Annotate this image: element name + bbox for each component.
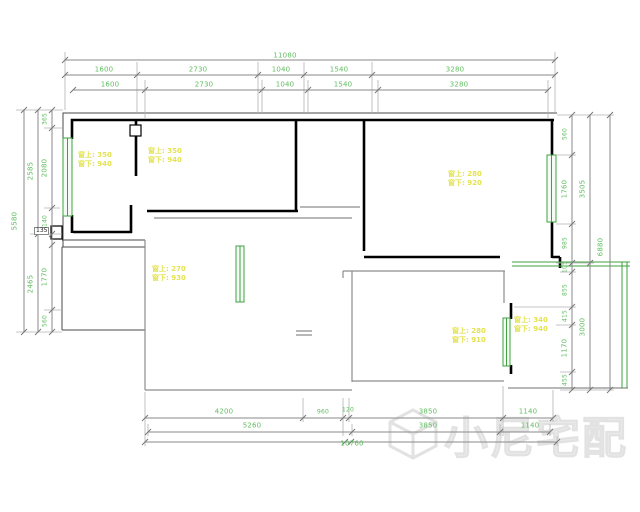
dimension-label: 5580 [12,212,19,231]
window-height-note: 窗上: 280窗下: 920 [448,170,482,188]
window-height-note: 窗上: 340窗下: 940 [514,316,548,334]
dimension-label: 105 [562,261,569,273]
flue-box [130,125,141,136]
window-height-note: 窗上: 350窗下: 940 [78,151,112,169]
dimension-label: 1760 [562,180,569,199]
dimension-ticks [21,57,613,445]
dimension-label: 415 [562,310,569,322]
windows [63,138,630,388]
dimension-label: 365 [42,113,49,125]
dimension-label: 960 [317,409,329,416]
dimension-label: 1600 [101,82,120,89]
dimension-label: 1540 [334,82,353,89]
entry-door-symbol [51,226,62,239]
dimension-label: 2465 [28,275,35,294]
dimension-label: 2730 [189,67,208,74]
dimension-label: 2585 [28,162,35,181]
dimension-label: 3850 [419,423,438,430]
dimension-label: 1770 [42,268,49,287]
dimension-label: 3850 [419,409,438,416]
dimension-label: 1040 [272,67,291,74]
dimension-label: 3280 [446,67,465,74]
floor-plan [0,0,640,512]
dimension-label: 560 [42,315,49,327]
extension-lines [16,52,614,446]
window-height-note: 窗上: 280窗下: 910 [452,327,486,345]
dimension-label: 5260 [243,423,262,430]
dimension-label: 1140 [521,423,540,430]
dimension-label: 1140 [519,409,538,416]
dimension-lines [24,60,610,442]
dimension-label: 1600 [95,67,114,74]
secondary-walls [145,207,628,390]
dimension-label: 3280 [450,82,469,89]
dimension-label: 120 [342,407,354,414]
dimension-label: 2080 [42,159,49,178]
wall-dimension-box: 135 [34,227,49,235]
dimension-label: 1540 [330,67,349,74]
dimension-label: 985 [562,237,569,249]
dimension-label: 6880 [598,238,605,257]
dimension-label: 560 [562,128,569,140]
dimension-label: 4200 [215,409,234,416]
dimension-label: 1170 [562,339,569,358]
dimension-label: 140 [42,215,49,227]
dimension-label: 2730 [195,82,214,89]
floor-plan-canvas: 小尼宅配 [0,0,640,512]
window-height-note: 窗上: 350窗下: 940 [148,147,182,165]
dimension-label: 10760 [340,441,363,448]
dimension-label: 855 [562,284,569,296]
dimension-label: 11080 [273,53,296,60]
dimension-label: 3505 [580,180,587,199]
dimension-label: 3000 [580,318,587,337]
dimension-label: 455 [562,374,569,386]
window-height-note: 窗上: 270窗下: 930 [152,265,186,283]
dimension-label: 1040 [276,82,295,89]
